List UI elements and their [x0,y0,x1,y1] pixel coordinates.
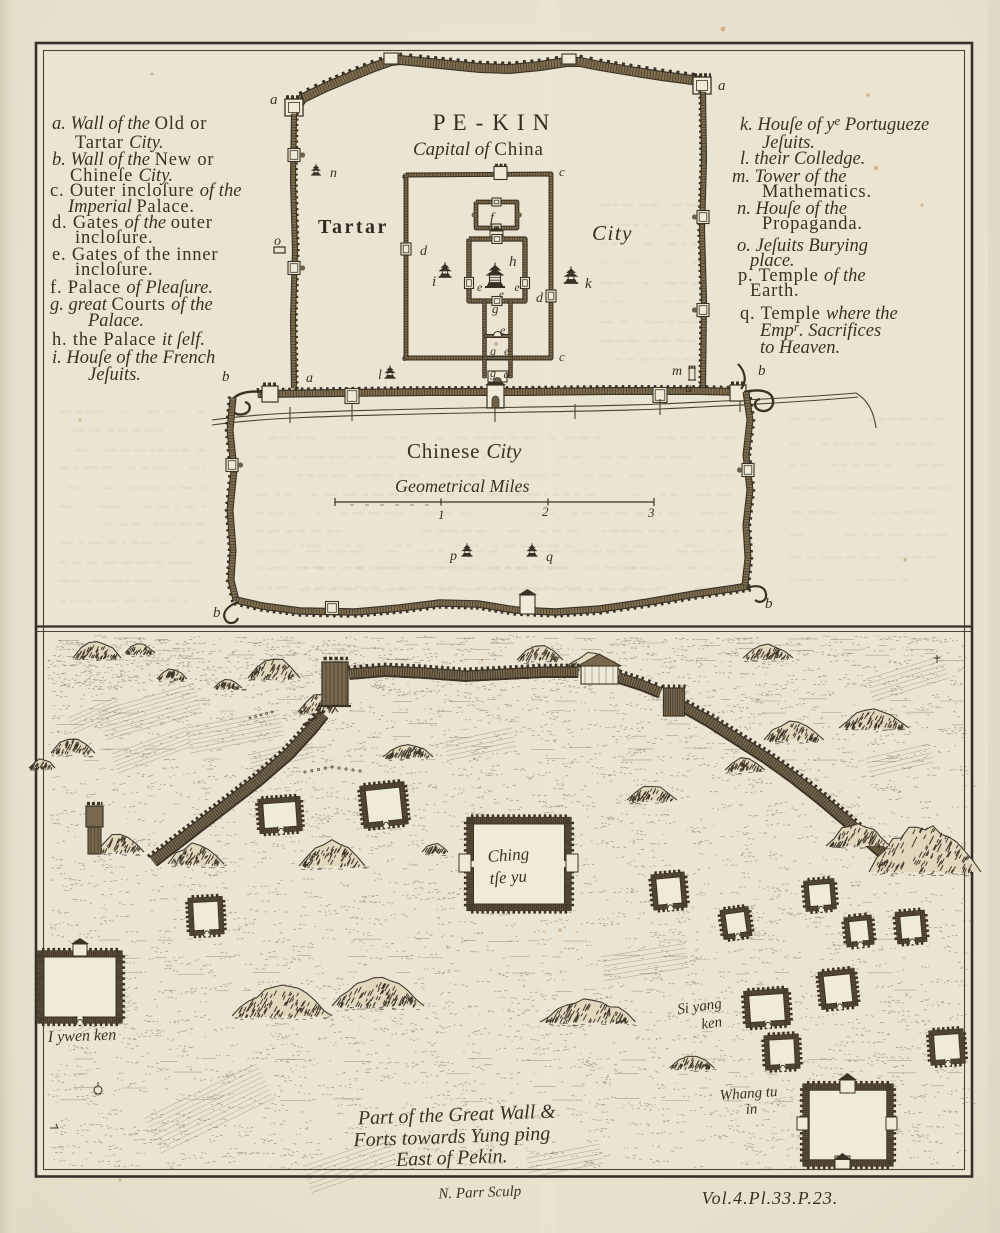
svg-text:Jeſuits.: Jeſuits. [88,365,141,385]
svg-text:g: g [492,301,499,316]
svg-text:1: 1 [438,507,445,522]
svg-text:i: i [432,274,436,290]
svg-text:I ywen ken: I ywen ken [47,1027,117,1046]
svg-text:c: c [402,349,408,364]
svg-text:c: c [402,167,408,182]
svg-text:a: a [306,371,313,386]
svg-text:City: City [592,221,633,245]
svg-text:d: d [504,367,511,381]
svg-text:2: 2 [542,504,549,519]
svg-text:b: b [222,369,230,385]
svg-text:Propaganda.: Propaganda. [762,214,863,234]
svg-text:Tartar: Tartar [318,216,389,238]
svg-text:tſe yu: tſe yu [489,866,528,888]
svg-text:ken: ken [700,1014,723,1033]
svg-text:Earth.: Earth. [750,281,800,301]
svg-text:o: o [274,234,281,249]
svg-text:d: d [420,244,428,259]
svg-text:Ching: Ching [487,844,530,866]
svg-text:g: g [490,366,496,380]
svg-text:p: p [449,549,457,564]
svg-text:a: a [270,92,278,108]
svg-text:Chinese City: Chinese City [407,439,522,463]
svg-text:incloſure.: incloſure. [75,260,153,280]
svg-text:Vol.4.Pl.33.P.23.: Vol.4.Pl.33.P.23. [702,1188,839,1208]
svg-text:e: e [477,280,483,294]
svg-text:Geometrical Miles: Geometrical Miles [395,476,529,496]
svg-text:n: n [330,166,337,181]
svg-text:c: c [559,349,565,364]
svg-text:e: e [500,323,506,337]
svg-text:l: l [378,368,382,383]
svg-text:d: d [536,291,544,306]
svg-text:e: e [515,280,521,294]
svg-text:a: a [685,381,692,396]
svg-text:b: b [758,363,766,379]
svg-text:Capital of China: Capital of China [413,139,544,160]
svg-text:c: c [559,164,565,179]
svg-text:a: a [718,78,726,94]
svg-text:h: h [509,254,517,270]
svg-text:l. their Colledge.: l. their Colledge. [740,149,865,169]
svg-text:Palace.: Palace. [87,311,144,331]
svg-text:k: k [585,276,592,292]
svg-text:3: 3 [647,505,655,520]
svg-text:to Heaven.: to Heaven. [760,338,840,358]
svg-text:East of Pekin.: East of Pekin. [395,1145,508,1171]
svg-text:g: g [490,344,496,358]
svg-text:e: e [504,344,510,358]
svg-text:h. the Palace it ſelf.: h. the Palace it ſelf. [52,330,205,350]
svg-text:b: b [213,605,221,621]
svg-text:e: e [499,289,504,301]
svg-text:m: m [672,364,682,379]
svg-text:N. Parr Sculp: N. Parr Sculp [437,1184,522,1203]
svg-text:q: q [546,550,553,565]
svg-text:a. Wall of the Old or: a. Wall of the Old or [52,114,207,134]
svg-text:in: in [745,1101,758,1118]
